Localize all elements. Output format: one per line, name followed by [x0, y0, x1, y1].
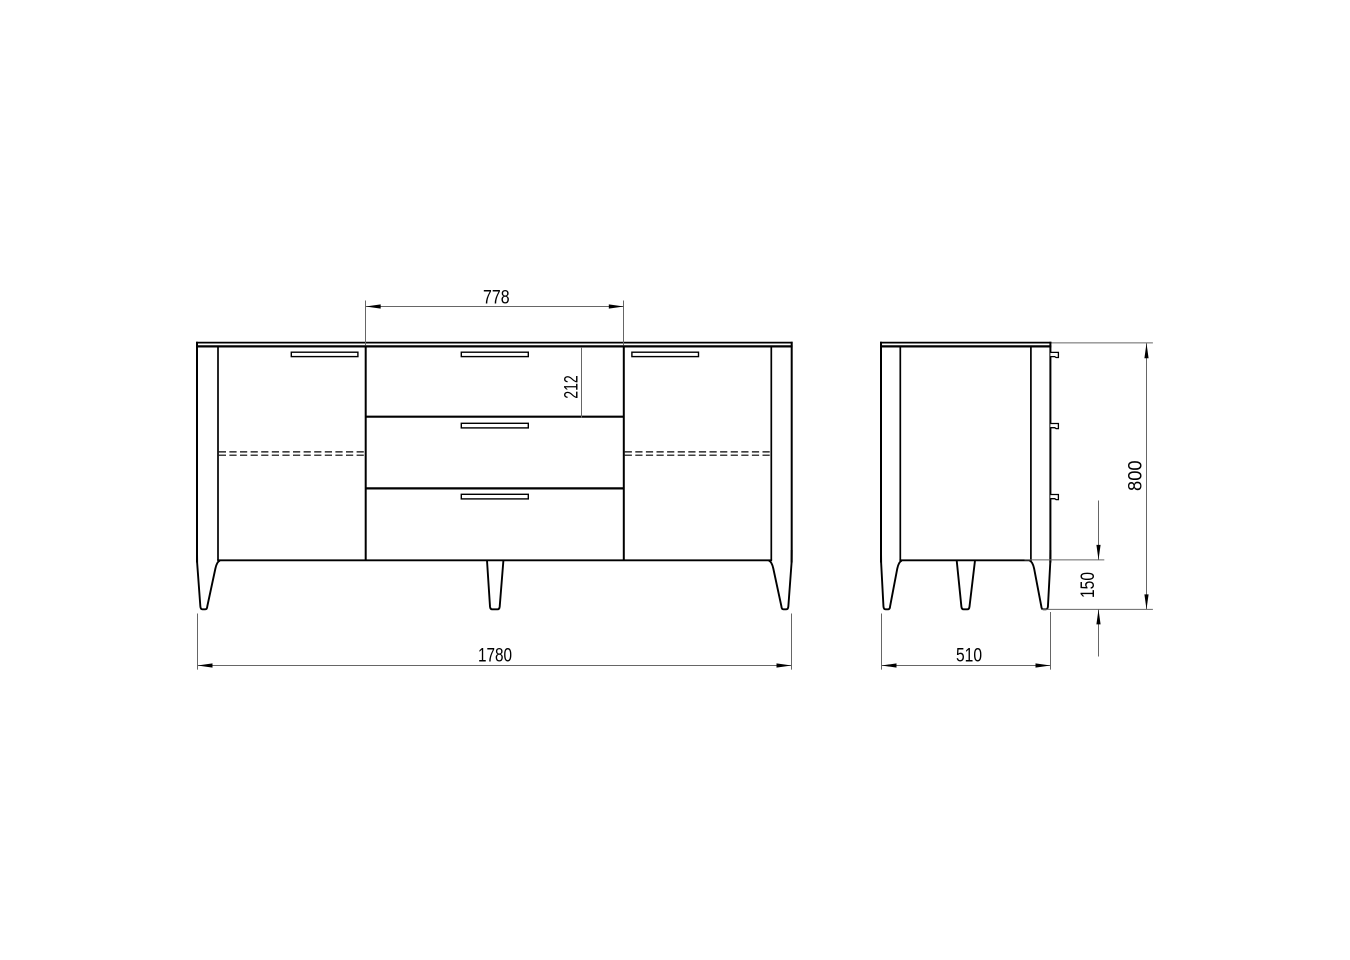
svg-text:1780: 1780 [478, 646, 512, 667]
svg-text:212: 212 [561, 375, 582, 399]
svg-text:800: 800 [1126, 460, 1147, 491]
svg-text:778: 778 [483, 287, 510, 308]
svg-text:510: 510 [956, 646, 982, 667]
svg-text:150: 150 [1078, 572, 1099, 598]
